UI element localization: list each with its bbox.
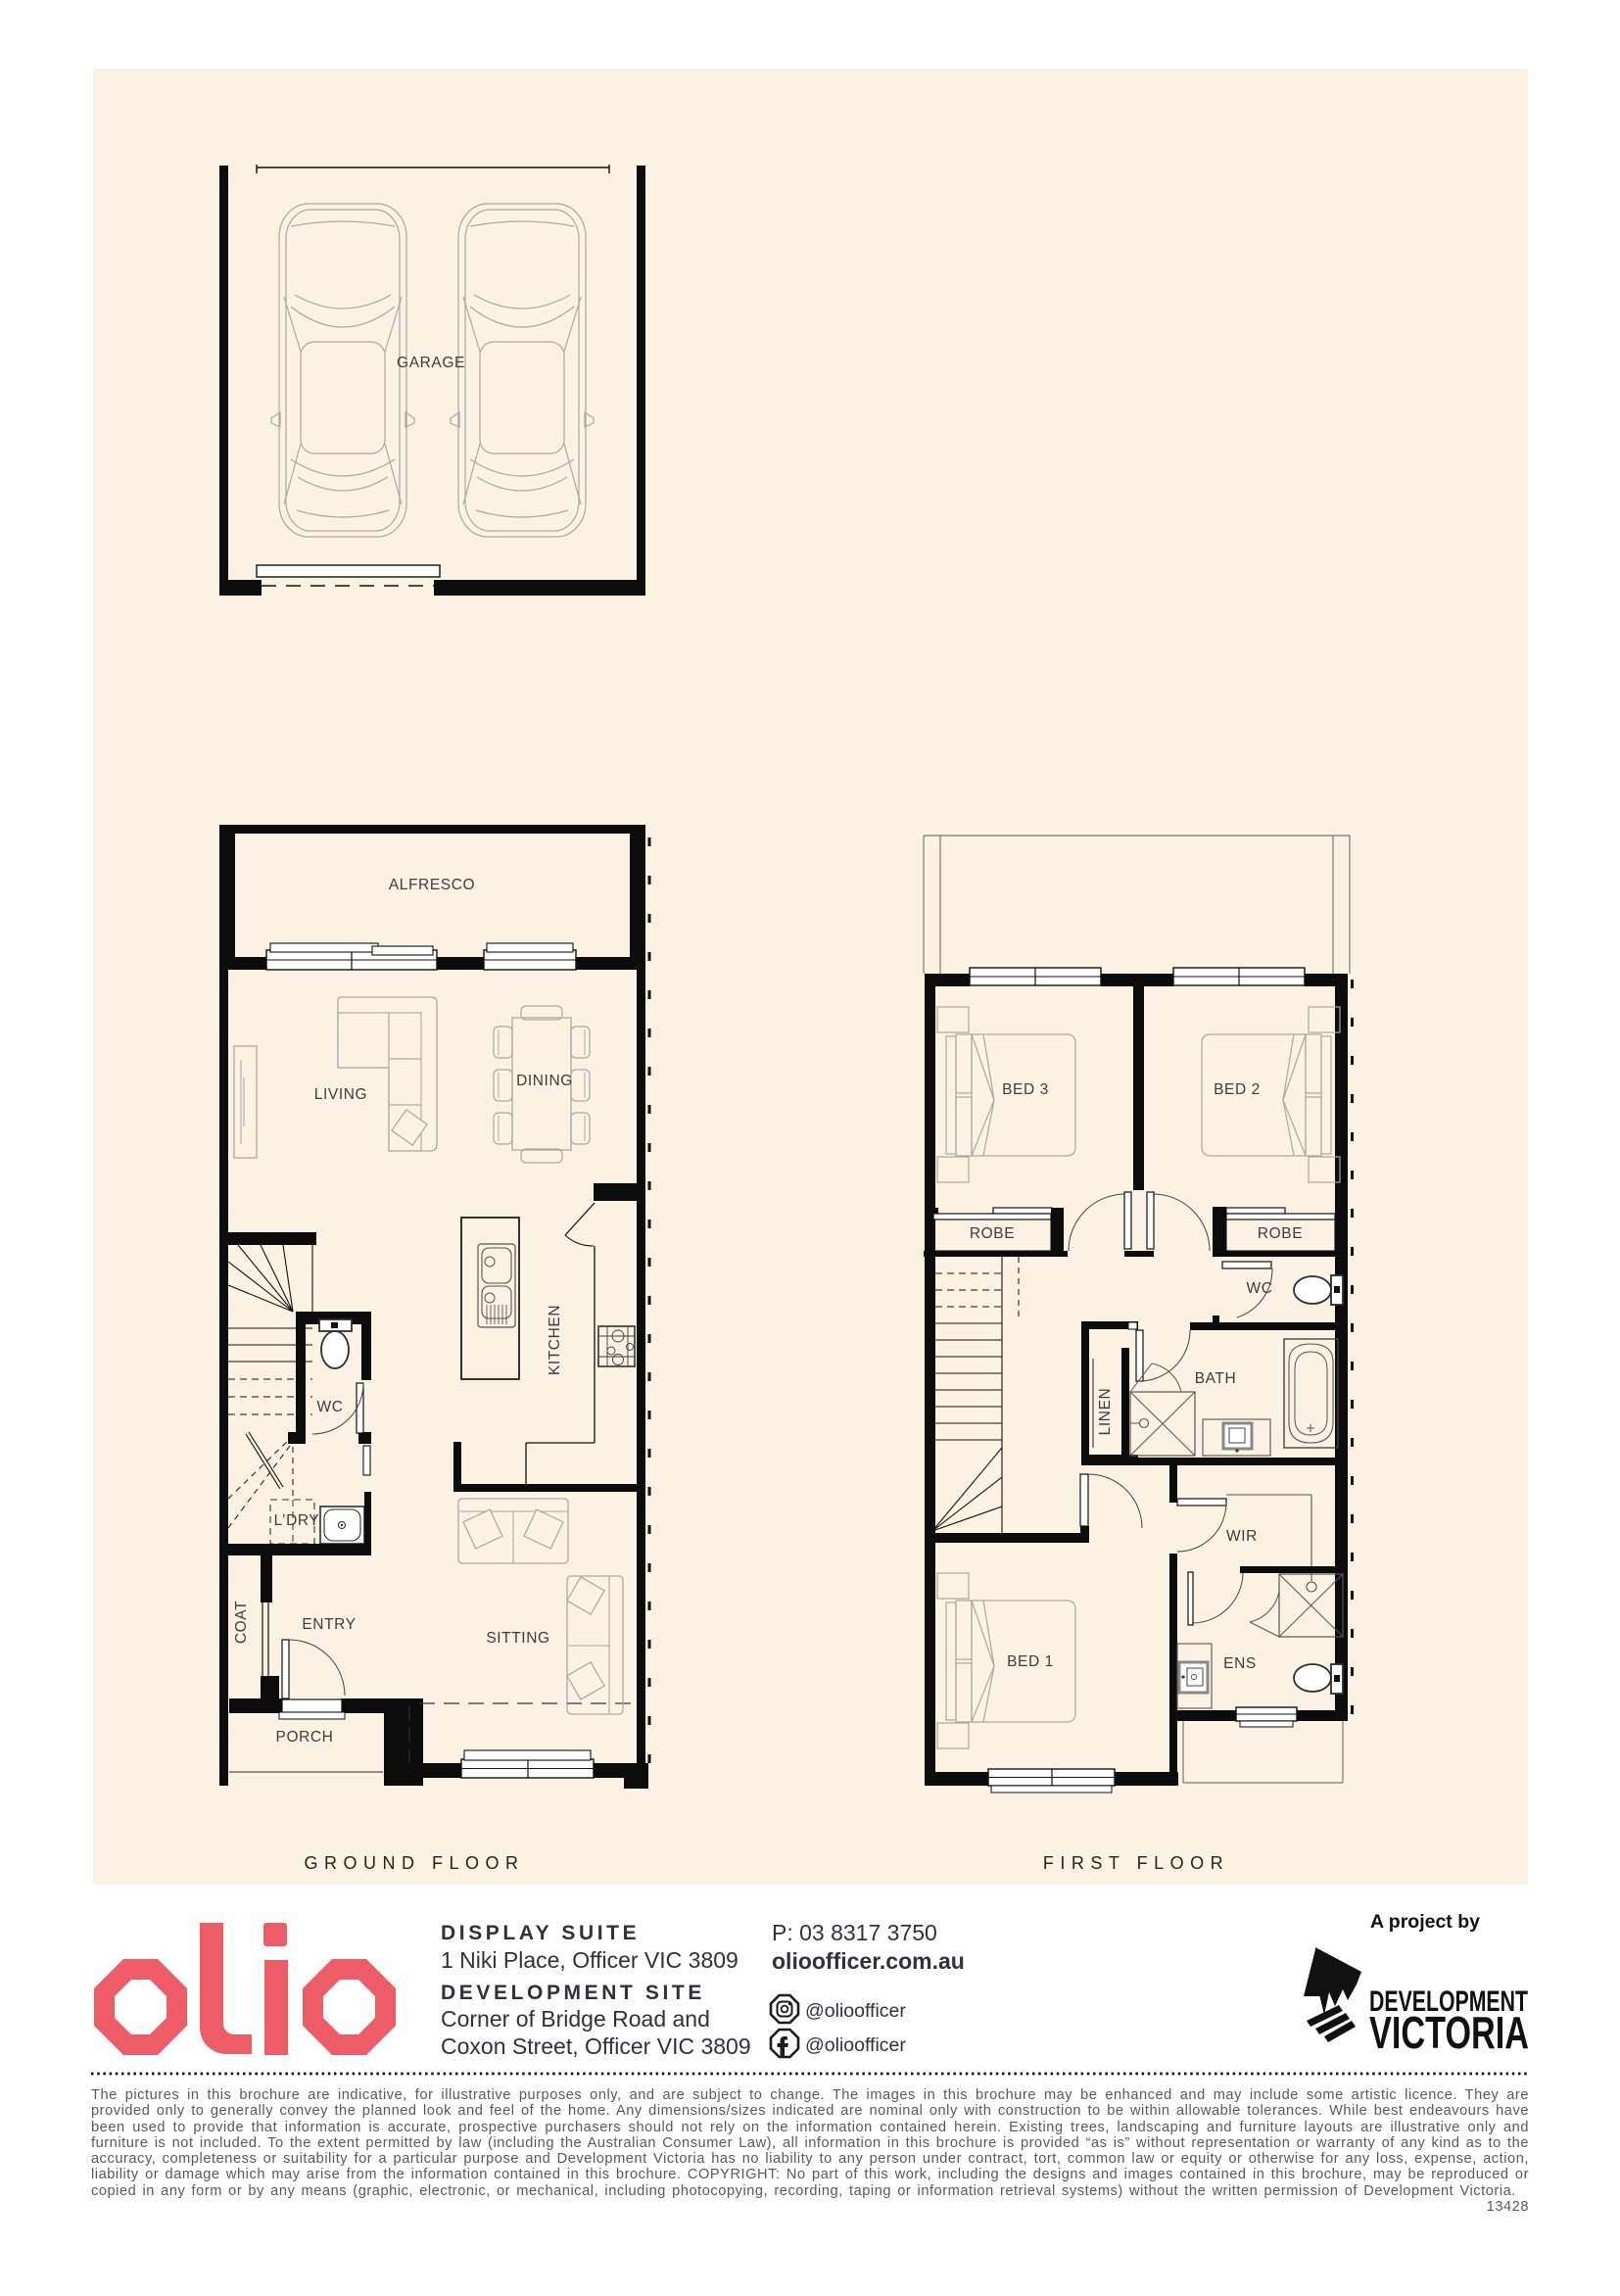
svg-text:ENS: ENS: [1223, 1655, 1257, 1672]
svg-text:BED 1: BED 1: [1007, 1653, 1054, 1670]
svg-text:GARAGE: GARAGE: [397, 355, 465, 371]
svg-text:1 Niki Place, Officer VIC 3809: 1 Niki Place, Officer VIC 3809: [441, 1947, 739, 1973]
svg-text:P: 03 8317 3750: P: 03 8317 3750: [772, 1920, 937, 1945]
svg-text:WIR: WIR: [1226, 1528, 1258, 1545]
svg-text:Corner of Bridge Road and: Corner of Bridge Road and: [441, 2006, 710, 2032]
svg-text:ENTRY: ENTRY: [302, 1616, 356, 1633]
svg-text:olioofficer.com.au: olioofficer.com.au: [772, 1948, 965, 1974]
svg-text:ROBE: ROBE: [970, 1225, 1015, 1242]
svg-text:KITCHEN: KITCHEN: [547, 1305, 563, 1375]
svg-text:BED 3: BED 3: [1002, 1081, 1049, 1098]
svg-text:ROBE: ROBE: [1258, 1225, 1303, 1242]
svg-text:BED 2: BED 2: [1214, 1081, 1261, 1098]
svg-text:SITTING: SITTING: [486, 1630, 549, 1647]
svg-text:A project by: A project by: [1370, 1911, 1480, 1933]
svg-text:FIRST FLOOR: FIRST FLOOR: [1043, 1853, 1229, 1873]
svg-text:LINEN: LINEN: [1097, 1388, 1114, 1436]
svg-text:WC: WC: [316, 1399, 343, 1415]
svg-text:Coxon Street, Officer VIC 3809: Coxon Street, Officer VIC 3809: [441, 2033, 751, 2059]
svg-text:VICTORIA: VICTORIA: [1369, 2007, 1529, 2058]
svg-text:@olioofficer: @olioofficer: [805, 2034, 906, 2056]
svg-text:GROUND FLOOR: GROUND FLOOR: [304, 1853, 524, 1873]
svg-text:DISPLAY SUITE: DISPLAY SUITE: [441, 1922, 640, 1944]
svg-text:@olioofficer: @olioofficer: [805, 2000, 906, 2022]
svg-text:DEVELOPMENT SITE: DEVELOPMENT SITE: [441, 1982, 705, 2004]
svg-text:L’DRY: L’DRY: [274, 1512, 320, 1529]
svg-text:BATH: BATH: [1195, 1370, 1237, 1387]
svg-text:ALFRESCO: ALFRESCO: [389, 877, 475, 893]
svg-text:DINING: DINING: [516, 1073, 573, 1089]
svg-text:WC: WC: [1246, 1280, 1272, 1297]
svg-text:LIVING: LIVING: [314, 1086, 367, 1103]
svg-text:PORCH: PORCH: [276, 1729, 334, 1746]
svg-text:COAT: COAT: [233, 1601, 250, 1644]
